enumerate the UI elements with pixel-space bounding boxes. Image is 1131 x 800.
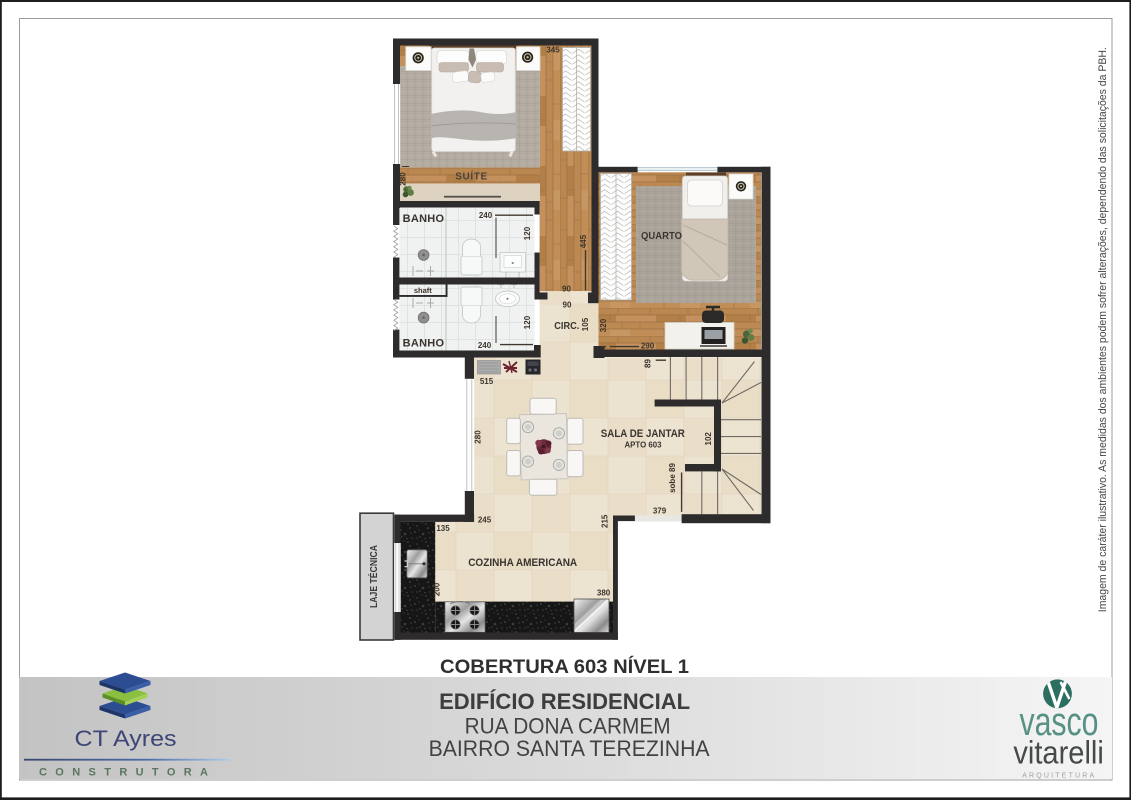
svg-text:LAJE TÉCNICA: LAJE TÉCNICA [367, 545, 380, 608]
svg-text:515: 515 [480, 377, 494, 386]
svg-text:BANHO: BANHO [403, 338, 445, 350]
svg-text:Imagem de caráter ilustrativo.: Imagem de caráter ilustrativo. As medida… [1097, 47, 1109, 612]
svg-text:vitarelli: vitarelli [1013, 734, 1104, 770]
svg-text:200: 200 [433, 582, 442, 596]
svg-text:sobe 89: sobe 89 [668, 463, 677, 493]
svg-text:BAIRRO SANTA TEREZINHA: BAIRRO SANTA TEREZINHA [429, 736, 711, 761]
svg-text:445: 445 [579, 234, 588, 248]
svg-text:320: 320 [599, 318, 608, 332]
svg-text:COBERTURA 603 NÍVEL 1: COBERTURA 603 NÍVEL 1 [440, 655, 689, 678]
svg-text:240: 240 [478, 341, 492, 350]
svg-text:BANHO: BANHO [403, 213, 445, 225]
svg-text:280: 280 [399, 172, 408, 186]
svg-text:shaft: shaft [414, 286, 432, 295]
svg-text:SUÍTE: SUÍTE [455, 170, 487, 183]
svg-text:120: 120 [523, 226, 532, 240]
svg-text:QUARTO: QUARTO [641, 230, 682, 242]
svg-text:102: 102 [704, 432, 713, 446]
svg-text:CIRC.: CIRC. [554, 320, 579, 332]
svg-text:105: 105 [581, 317, 590, 331]
svg-text:CT Ayres: CT Ayres [75, 726, 177, 751]
svg-text:89: 89 [643, 359, 652, 368]
svg-text:135: 135 [436, 524, 450, 533]
svg-text:280: 280 [473, 430, 482, 444]
svg-text:379: 379 [653, 507, 667, 516]
svg-text:EDIFÍCIO RESIDENCIAL: EDIFÍCIO RESIDENCIAL [439, 689, 690, 714]
svg-text:90: 90 [562, 284, 571, 293]
svg-text:ARQUITETURA: ARQUITETURA [1022, 773, 1094, 780]
svg-text:SALA DE JANTAR: SALA DE JANTAR [601, 428, 685, 440]
svg-text:90: 90 [563, 301, 572, 310]
svg-text:COZINHA AMERICANA: COZINHA AMERICANA [468, 557, 577, 569]
svg-text:120: 120 [523, 315, 532, 329]
svg-text:240: 240 [479, 211, 493, 220]
svg-text:380: 380 [597, 588, 611, 597]
svg-text:APTO 603: APTO 603 [625, 439, 662, 449]
svg-text:215: 215 [601, 514, 610, 528]
svg-text:245: 245 [478, 516, 492, 525]
svg-text:290: 290 [641, 342, 655, 351]
svg-text:345: 345 [546, 46, 560, 55]
svg-text:RUA DONA CARMEM: RUA DONA CARMEM [465, 714, 671, 739]
